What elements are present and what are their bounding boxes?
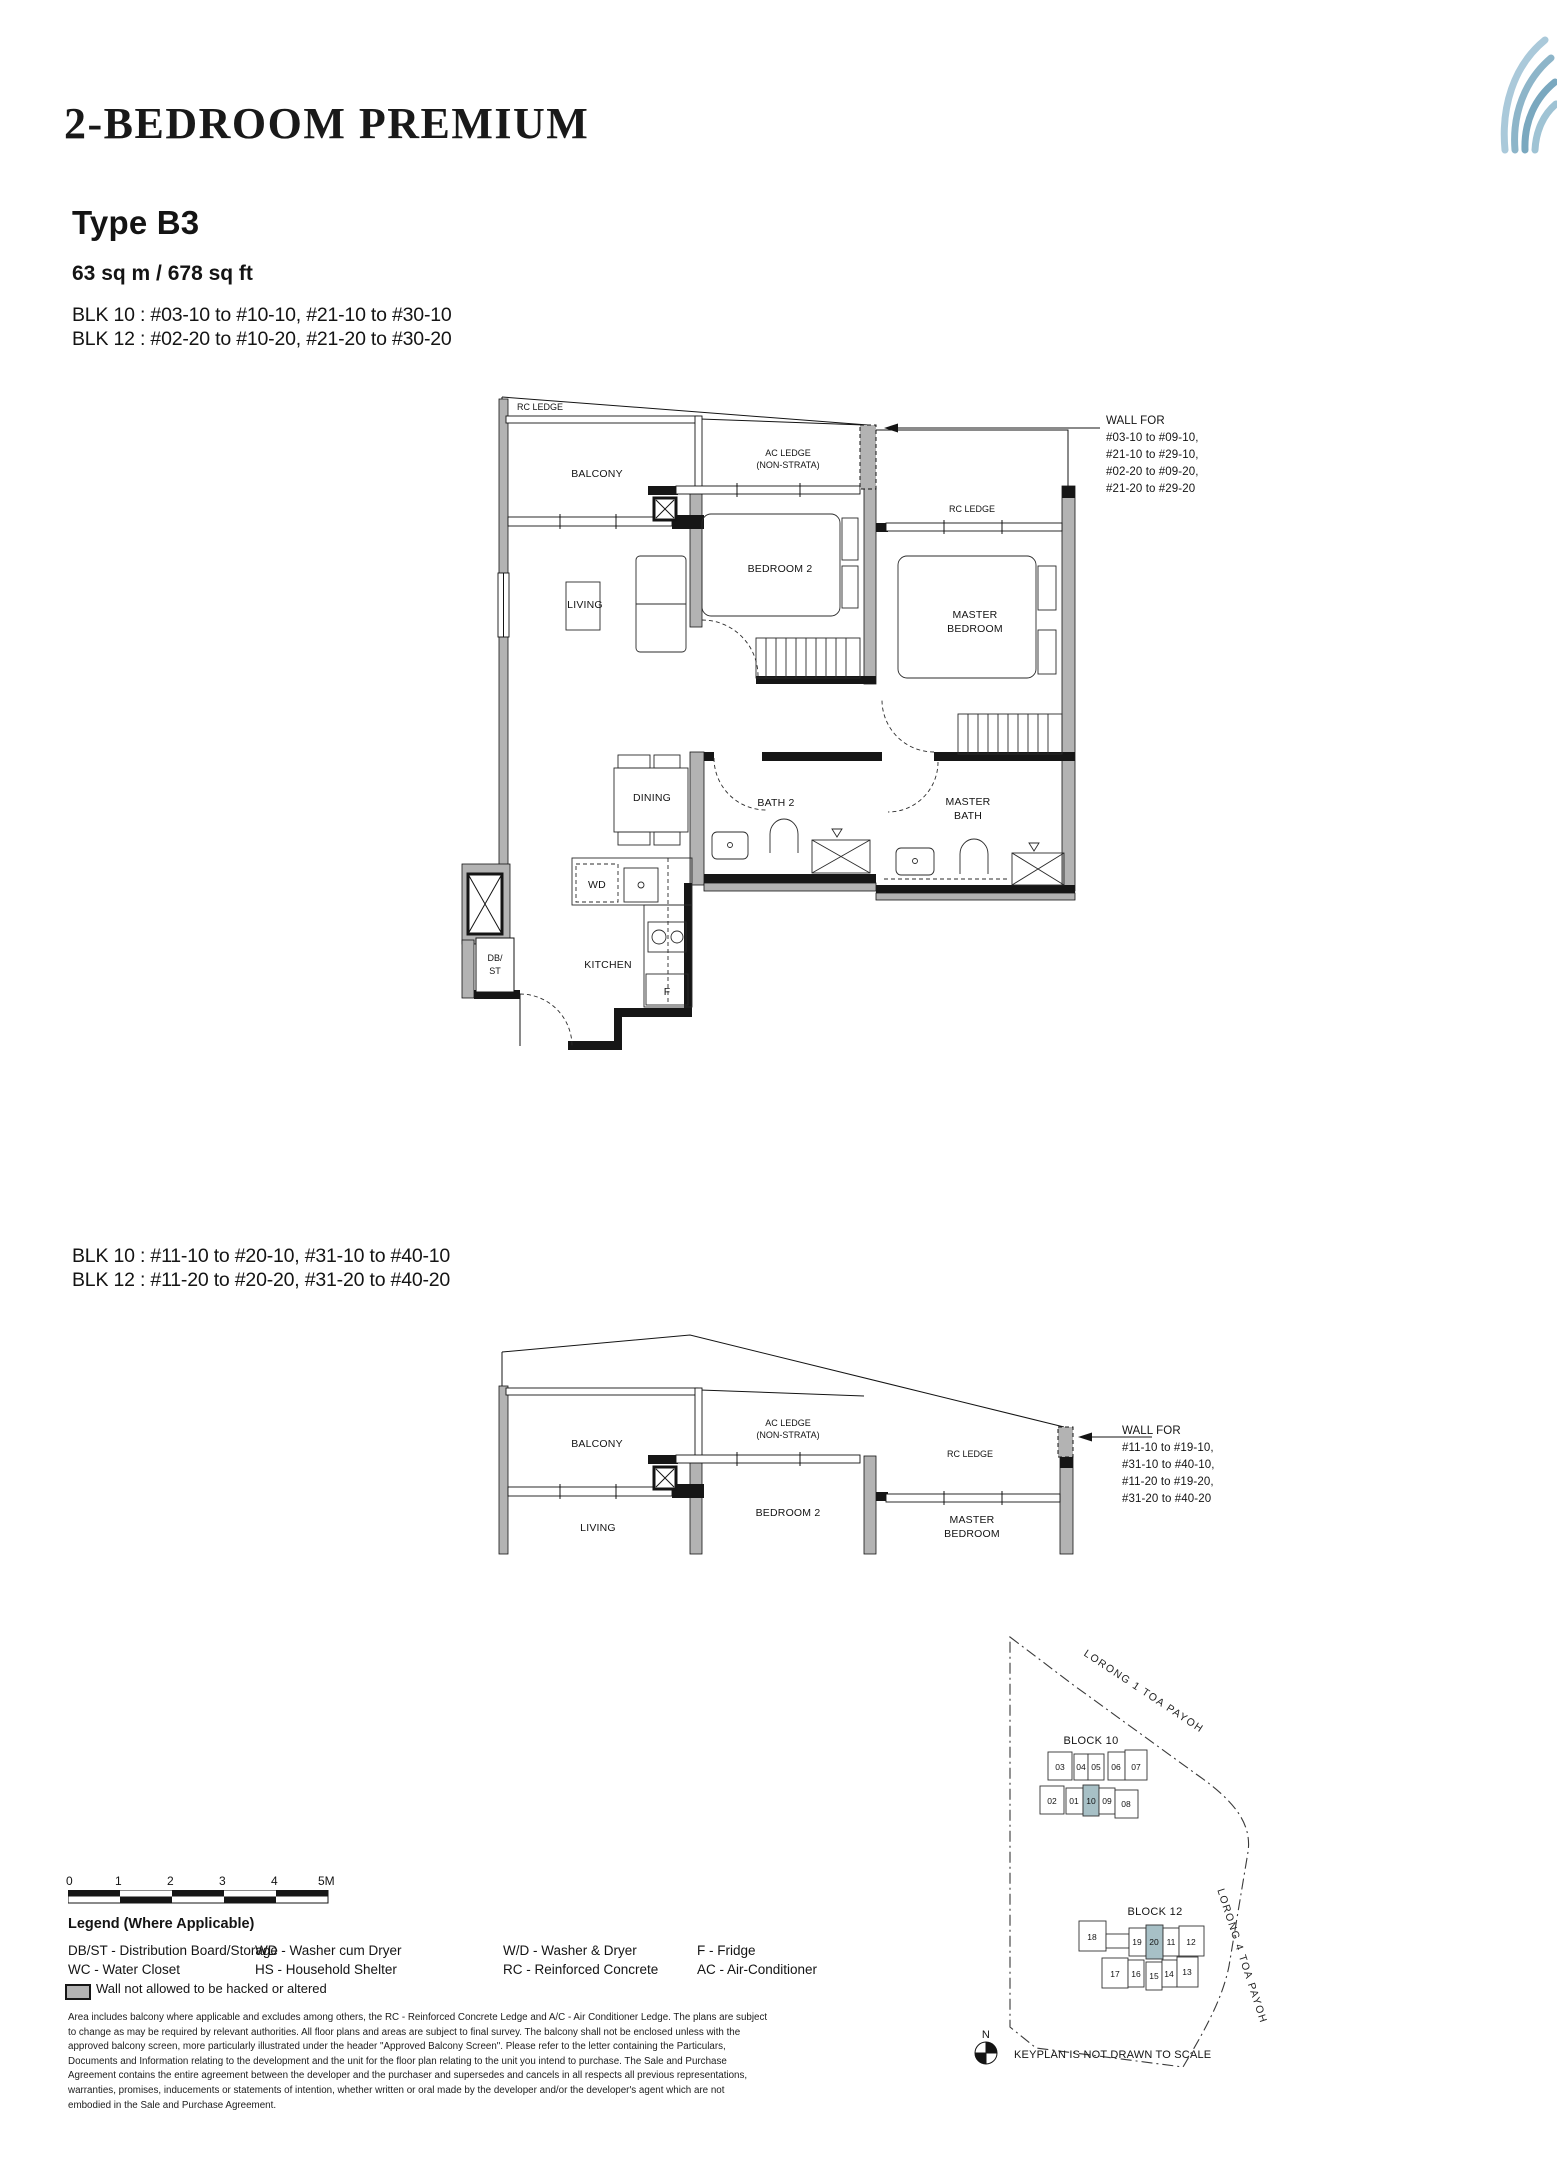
label-dbst-2: ST	[489, 966, 501, 976]
label-ac-ledge-2: (NON-STRATA)	[756, 1430, 819, 1440]
scale-tick: 1	[115, 1874, 122, 1888]
floor-plan-low-floors: RC LEDGE BALCONY AC LEDGE (NON-STRATA) R…	[450, 390, 1360, 1080]
wall-for-title: WALL FOR	[1122, 1423, 1215, 1440]
unit-12: 12	[1186, 1937, 1196, 1947]
road-label-lorong1: LORONG 1 TOA PAYOH	[1081, 1648, 1205, 1736]
wall-for-note-low: WALL FOR #03-10 to #09-10, #21-10 to #29…	[1106, 413, 1199, 498]
brand-leaf-logo-icon	[1497, 36, 1557, 154]
label-bath2: BATH 2	[757, 797, 794, 809]
block-line: BLK 10 : #03-10 to #10-10, #21-10 to #30…	[72, 303, 452, 327]
plan1-restricted-wall	[860, 424, 1100, 490]
disclaimer-text: Area includes balcony where applicable a…	[68, 2011, 770, 2113]
restricted-wall-text: Wall not allowed to be hacked or altered	[96, 1981, 327, 1996]
unit-16: 16	[1131, 1969, 1141, 1979]
wall-for-line: #11-20 to #19-20,	[1122, 1474, 1215, 1491]
unit-05: 05	[1091, 1762, 1101, 1772]
page-title: 2-BEDROOM PREMIUM	[64, 98, 589, 149]
block-line: BLK 10 : #11-10 to #20-10, #31-10 to #40…	[72, 1244, 450, 1268]
scale-bar-graphic	[68, 1890, 332, 1905]
unit-18: 18	[1087, 1932, 1097, 1942]
label-dining: DINING	[633, 792, 671, 804]
legend-col-1: DB/ST - Distribution Board/Storage WC - …	[68, 1941, 278, 1979]
legend-entry: WC - Water Closet	[68, 1960, 278, 1979]
legend-title: Legend (Where Applicable)	[68, 1916, 254, 1932]
label-kitchen: KITCHEN	[584, 959, 632, 971]
label-master-bedroom: MASTER	[953, 609, 998, 621]
label-living: LIVING	[567, 599, 603, 611]
keyplan: LORONG 1 TOA PAYOH LORONG 4 TOA PAYOH BL…	[950, 1628, 1370, 2098]
restricted-wall-swatch	[65, 1984, 91, 2000]
wall-for-line: #11-10 to #19-10,	[1122, 1440, 1215, 1457]
wall-for-line: #31-20 to #40-20	[1122, 1491, 1215, 1508]
label-master-bath: MASTER	[946, 796, 991, 808]
unit-04: 04	[1076, 1762, 1086, 1772]
legend-entry: RC - Reinforced Concrete	[503, 1960, 658, 1979]
label-master-bedroom-2: BEDROOM	[944, 1528, 1000, 1540]
wall-for-note-high: WALL FOR #11-10 to #19-10, #31-10 to #40…	[1122, 1423, 1215, 1508]
unit-17: 17	[1110, 1969, 1120, 1979]
wall-for-line: #21-10 to #29-10,	[1106, 447, 1199, 464]
plan2-room-labels: BALCONY LIVING AC LEDGE (NON-STRATA) BED…	[571, 1418, 1000, 1540]
unit-07: 07	[1131, 1762, 1141, 1772]
label-dbst: DB/	[487, 953, 503, 963]
road-label-lorong4: LORONG 4 TOA PAYOH	[1214, 1887, 1269, 2025]
label-master-bath-2: BATH	[954, 810, 982, 822]
label-ac-ledge: AC LEDGE	[765, 1418, 811, 1428]
label-rc-ledge: RC LEDGE	[947, 1449, 993, 1459]
floor-plan-high-floors: BALCONY LIVING AC LEDGE (NON-STRATA) BED…	[450, 1320, 1360, 1570]
legend-entry: DB/ST - Distribution Board/Storage	[68, 1941, 278, 1960]
keyplan-note: KEYPLAN IS NOT DRAWN TO SCALE	[1014, 2049, 1211, 2061]
legend-col-3: W/D - Washer & Dryer RC - Reinforced Con…	[503, 1941, 658, 1979]
north-label: N	[982, 2029, 990, 2041]
north-arrow-icon: N	[975, 2029, 997, 2064]
block-line: BLK 12 : #02-20 to #10-20, #21-20 to #30…	[72, 327, 452, 351]
unit-type-heading: Type B3	[72, 204, 199, 242]
unit-14: 14	[1164, 1969, 1174, 1979]
label-rc-ledge-right: RC LEDGE	[949, 504, 995, 514]
unit-19: 19	[1132, 1937, 1142, 1947]
unit-01: 01	[1069, 1796, 1079, 1806]
legend-entry: F - Fridge	[697, 1941, 817, 1960]
plan2-ledges	[502, 1335, 1064, 1427]
wall-for-line: #02-20 to #09-20,	[1106, 464, 1199, 481]
legend-entry: WD - Washer cum Dryer	[255, 1941, 402, 1960]
legend-col-4: F - Fridge AC - Air-Conditioner	[697, 1941, 817, 1979]
scale-tick: 5M	[318, 1874, 335, 1888]
unit-06: 06	[1111, 1762, 1121, 1772]
legend-col-2: WD - Washer cum Dryer HS - Household She…	[255, 1941, 402, 1979]
wall-for-line: #31-10 to #40-10,	[1122, 1457, 1215, 1474]
scale-tick: 2	[167, 1874, 174, 1888]
block-stack-list-high: BLK 10 : #11-10 to #20-10, #31-10 to #40…	[72, 1244, 450, 1292]
wall-for-line: #21-20 to #29-20	[1106, 481, 1199, 498]
wall-for-line: #03-10 to #09-10,	[1106, 430, 1199, 447]
label-bedroom2: BEDROOM 2	[748, 563, 813, 575]
legend: DB/ST - Distribution Board/Storage WC - …	[68, 1941, 968, 1983]
scale-tick: 4	[271, 1874, 278, 1888]
unit-20-highlighted: 20	[1149, 1937, 1159, 1947]
plan1-ac-unit	[654, 498, 676, 520]
label-bedroom2: BEDROOM 2	[756, 1507, 821, 1519]
block12-units: 18 19 20 11 12 17 16 15 14 13	[1079, 1921, 1204, 1990]
label-ac-ledge-2: (NON-STRATA)	[756, 460, 819, 470]
plan1-walls	[462, 399, 1075, 1050]
unit-11: 11	[1167, 1937, 1176, 1947]
label-balcony: BALCONY	[571, 1438, 623, 1450]
site-boundary	[1010, 1637, 1249, 2067]
wall-for-title: WALL FOR	[1106, 413, 1199, 430]
block12-label: BLOCK 12	[1128, 1906, 1183, 1918]
unit-area: 63 sq m / 678 sq ft	[72, 262, 253, 286]
unit-13: 13	[1182, 1967, 1192, 1977]
label-living: LIVING	[580, 1522, 616, 1534]
unit-15: 15	[1149, 1971, 1159, 1981]
block10-label: BLOCK 10	[1064, 1735, 1119, 1747]
legend-entry: W/D - Washer & Dryer	[503, 1941, 658, 1960]
scale-tick: 0	[66, 1874, 73, 1888]
legend-entry: HS - Household Shelter	[255, 1960, 402, 1979]
block-stack-list-low: BLK 10 : #03-10 to #10-10, #21-10 to #30…	[72, 303, 452, 351]
scale-tick: 3	[219, 1874, 226, 1888]
scale-bar: 0 1 2 3 4 5M	[66, 1874, 346, 1906]
unit-08: 08	[1121, 1799, 1131, 1809]
label-ac-ledge: AC LEDGE	[765, 448, 811, 458]
block10-units: 03 04 05 06 07 02 01 10 09 08	[1040, 1750, 1147, 1818]
unit-03: 03	[1055, 1762, 1065, 1772]
label-master-bedroom: MASTER	[950, 1514, 995, 1526]
label-washer: WD	[588, 879, 606, 891]
block-line: BLK 12 : #11-20 to #20-20, #31-20 to #40…	[72, 1268, 450, 1292]
unit-02: 02	[1047, 1796, 1057, 1806]
label-master-bedroom-2: BEDROOM	[947, 623, 1003, 635]
label-balcony: BALCONY	[571, 468, 623, 480]
unit-09: 09	[1102, 1796, 1112, 1806]
plan2-ac-unit	[654, 1467, 676, 1489]
unit-10-highlighted: 10	[1086, 1796, 1096, 1806]
label-rc-ledge-top: RC LEDGE	[517, 402, 563, 412]
label-fridge: F	[664, 986, 671, 998]
legend-entry: AC - Air-Conditioner	[697, 1960, 817, 1979]
